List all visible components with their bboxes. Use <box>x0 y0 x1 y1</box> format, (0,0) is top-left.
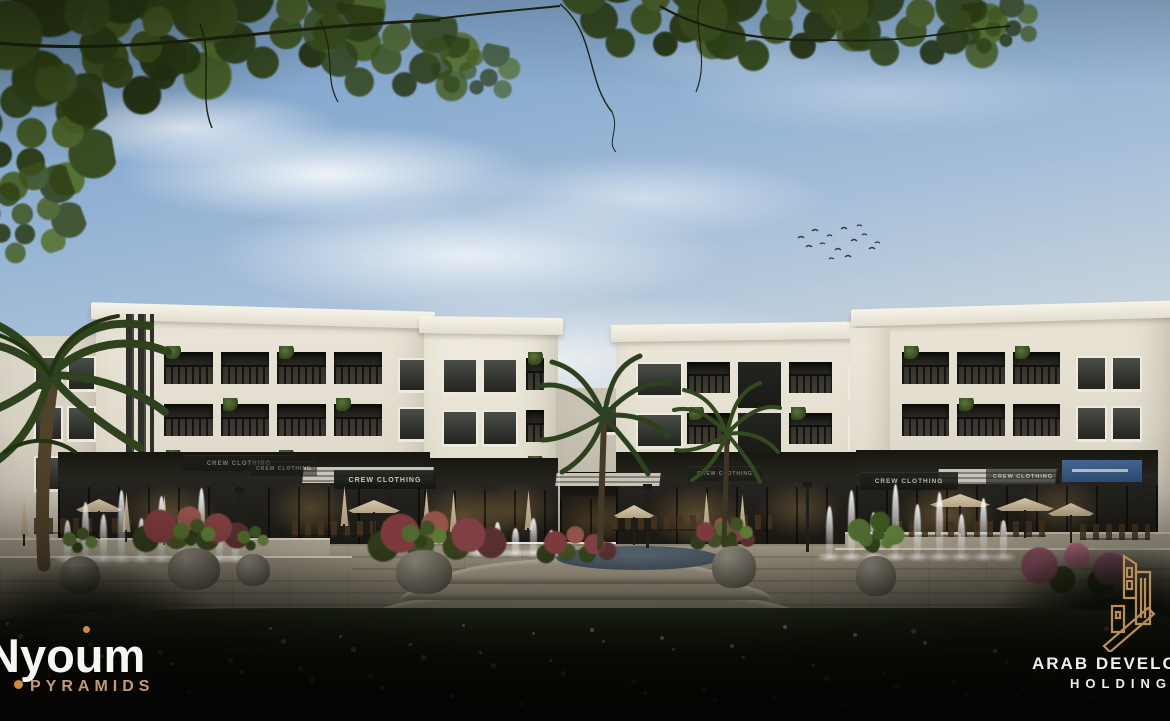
pot-plant <box>850 524 902 562</box>
balcony <box>221 352 270 384</box>
window <box>482 410 518 447</box>
balcony-railing <box>221 365 270 385</box>
balcony-railing <box>687 425 730 444</box>
building-cornice <box>611 321 891 342</box>
balcony <box>221 404 270 436</box>
balcony-railing <box>902 417 949 437</box>
balcony <box>526 358 544 390</box>
arab-developers-holding-logo: ARAB DEVELOPERS HOLDING <box>1028 552 1170 702</box>
balcony <box>957 352 1004 384</box>
gold-dot-icon <box>14 680 23 689</box>
balcony-railing <box>334 365 383 385</box>
lamp-head <box>643 484 652 489</box>
balcony-railing <box>789 374 832 393</box>
balcony <box>957 404 1004 436</box>
window <box>398 407 426 442</box>
wildflower <box>643 691 647 695</box>
developer-building-mark-icon <box>1092 552 1164 652</box>
umbrella-pole <box>23 534 25 546</box>
balcony-railing <box>277 365 326 385</box>
pot-plant <box>390 518 458 556</box>
balcony <box>277 404 326 436</box>
balcony-plant <box>791 407 806 420</box>
lamp-head <box>385 482 394 487</box>
balcony-railing <box>1013 365 1060 385</box>
storefront-fascia <box>424 458 558 482</box>
storefront-sign: CREW CLOTHING <box>251 461 317 476</box>
balcony-railing <box>687 374 730 393</box>
compound-render: CREW CLOTHINGCREW CLOTHINGCREW CLOTHINGC… <box>0 0 1170 721</box>
window <box>34 406 63 442</box>
balcony-railing <box>526 371 544 391</box>
wildflower <box>672 648 675 651</box>
balcony <box>1013 352 1060 384</box>
wildflower <box>240 670 244 674</box>
wildflower <box>713 699 717 703</box>
wildflower <box>660 636 664 640</box>
developer-name-line2: HOLDING <box>1070 676 1170 691</box>
balcony-railing <box>334 417 383 437</box>
wildflower <box>281 639 286 644</box>
balcony-railing <box>164 417 213 437</box>
balcony-railing <box>957 417 1004 437</box>
balcony-plant <box>223 398 238 411</box>
fountain-jet <box>826 506 833 558</box>
wildflower <box>923 641 927 645</box>
wildflower <box>1022 688 1025 691</box>
wildflower <box>561 671 566 676</box>
balcony-plant <box>959 398 974 411</box>
wildflower <box>771 695 776 700</box>
balcony <box>526 410 544 442</box>
balcony <box>277 352 326 384</box>
balcony-plant <box>336 398 351 411</box>
balcony-railing <box>221 417 270 437</box>
wildflower <box>228 658 233 663</box>
wildflower <box>380 686 384 690</box>
balcony <box>334 404 383 436</box>
balcony-plant <box>166 346 181 359</box>
facade-fins <box>126 314 154 464</box>
scene-layers: CREW CLOTHINGCREW CLOTHINGCREW CLOTHINGC… <box>0 0 1170 721</box>
balcony <box>687 413 730 444</box>
wildflower <box>479 651 482 654</box>
pot-plant <box>54 524 106 562</box>
building-cornice <box>851 300 1170 326</box>
balcony-railing <box>1013 417 1060 437</box>
window <box>482 358 518 395</box>
window <box>1076 356 1107 392</box>
window <box>442 358 478 395</box>
balcony-railing <box>789 425 832 444</box>
balcony-railing <box>277 417 326 437</box>
window <box>636 362 683 398</box>
wildflower <box>783 625 787 629</box>
recessed-shaft <box>738 362 781 408</box>
wildflower <box>812 664 815 667</box>
wildflower <box>853 633 857 637</box>
wildflower <box>409 643 412 646</box>
balcony <box>902 352 949 384</box>
wildflower <box>894 684 899 689</box>
fountain-jet <box>118 490 125 560</box>
wildflower <box>532 632 535 635</box>
balcony-railing <box>902 365 949 385</box>
wildflower <box>491 663 496 668</box>
balcony-railing <box>957 365 1004 385</box>
balcony-railing <box>526 423 544 443</box>
lamp-head <box>803 482 812 487</box>
balcony <box>687 362 730 393</box>
building-cornice <box>419 316 563 335</box>
balcony-plant <box>904 346 919 359</box>
wildflower <box>6 622 9 625</box>
window <box>67 356 96 392</box>
nyoum-wordmark: Nyoum <box>0 628 145 683</box>
window <box>1111 406 1142 442</box>
window <box>67 406 96 442</box>
window <box>1076 406 1107 442</box>
wildflower <box>298 666 303 671</box>
balcony <box>164 352 213 384</box>
pot-plant <box>706 514 762 552</box>
wildflower <box>590 628 594 632</box>
pyramids-label: PYRAMIDS <box>30 678 154 696</box>
window <box>34 356 63 392</box>
planter-pot <box>396 550 452 594</box>
wildflower <box>269 627 272 630</box>
red-shrub <box>534 520 620 570</box>
wildflower <box>549 659 552 662</box>
wildflower <box>602 640 605 643</box>
umbrella-pole <box>1024 510 1026 538</box>
tree-foliage <box>947 0 1044 61</box>
storefront-sign: CREW CLOTHING <box>688 466 762 481</box>
wildflower <box>368 674 373 679</box>
balcony-plant <box>279 346 294 359</box>
lamp-head <box>235 488 244 493</box>
wildflower <box>339 635 342 638</box>
wildflower <box>631 679 636 684</box>
umbrella-pole <box>633 517 635 545</box>
balcony <box>1013 404 1060 436</box>
wildflower <box>450 694 454 698</box>
wildflower <box>824 676 829 681</box>
wildflower <box>742 656 745 659</box>
window <box>636 413 683 449</box>
wildflower <box>1005 661 1008 664</box>
wildflower <box>462 624 465 627</box>
balcony-railing <box>164 365 213 385</box>
umbrella-pole <box>343 524 345 536</box>
pot-plant <box>230 522 276 560</box>
wildflower <box>882 672 885 675</box>
nyoum-pyramids-logo: Nyoum PYRAMIDS <box>0 628 206 708</box>
wildflower <box>964 692 969 697</box>
storefront-sign: CREW CLOTHING <box>986 468 1060 484</box>
pot-plant <box>162 516 226 554</box>
storefront-sign: CREW CLOTHING <box>860 472 958 490</box>
umbrella-pole <box>527 528 529 540</box>
window <box>442 410 478 447</box>
balcony <box>789 413 832 444</box>
balcony-plant <box>528 352 543 365</box>
wildflower <box>911 629 916 634</box>
planter-pot <box>712 546 756 588</box>
window <box>398 358 426 393</box>
umbrella-pole <box>125 530 127 542</box>
balcony <box>789 362 832 393</box>
lamp-post <box>806 486 809 552</box>
fountain-jet <box>936 492 943 558</box>
balcony <box>334 352 383 384</box>
wildflower <box>520 702 524 706</box>
storefront-sign-blue <box>1062 460 1142 482</box>
sign-text-bars <box>1072 469 1128 472</box>
balcony <box>902 404 949 436</box>
balcony-plant <box>689 407 704 420</box>
wildflower <box>351 647 356 652</box>
developer-name-line1: ARAB DEVELOPERS <box>1032 654 1170 674</box>
wildflower <box>730 644 734 648</box>
balcony-plant <box>1015 346 1030 359</box>
planter-pot <box>856 556 896 596</box>
lamp-post <box>646 488 649 548</box>
window <box>1111 356 1142 392</box>
balcony <box>164 404 213 436</box>
wildflower <box>993 649 997 653</box>
wildflower <box>701 687 706 692</box>
wildflower <box>952 680 955 683</box>
wildflower <box>310 678 314 682</box>
gold-dot-icon <box>83 626 90 633</box>
wildflower <box>421 655 426 660</box>
wildflower <box>841 703 846 708</box>
